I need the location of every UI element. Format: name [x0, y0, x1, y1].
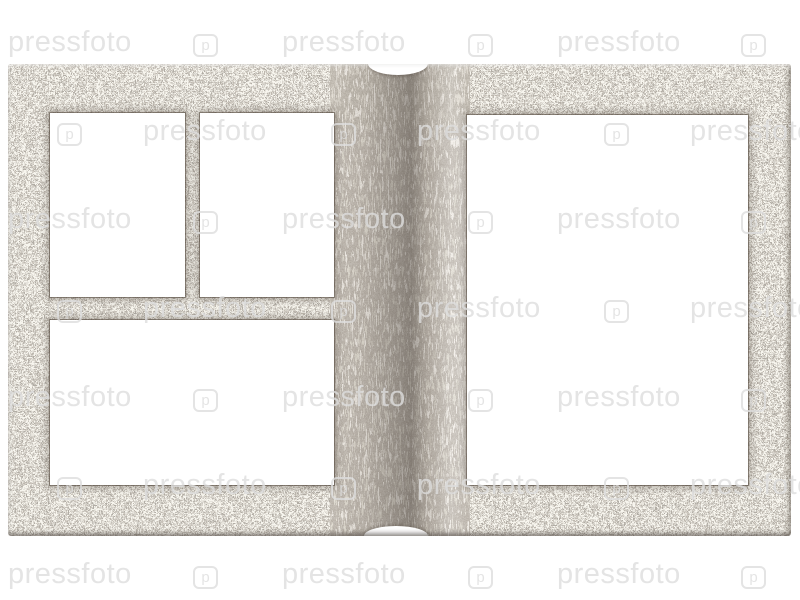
stock-photo-canvas: pressfotoppressfotoppressfotopppressfoto… [0, 0, 800, 600]
pressfoto-logo-icon: p [193, 566, 218, 589]
watermark-text: pressfoto [557, 28, 681, 56]
photo-window-bottom-left [50, 320, 334, 485]
pressfoto-logo-glyph: p [201, 38, 209, 53]
pressfoto-logo-icon: p [741, 566, 766, 589]
book-spine-gutter [334, 64, 467, 536]
pressfoto-logo-glyph: p [749, 38, 757, 53]
pressfoto-logo-glyph: p [476, 38, 484, 53]
watermark-text: pressfoto [557, 560, 681, 588]
pressfoto-logo-icon: p [741, 34, 766, 57]
photo-window-top-right [200, 113, 334, 297]
photo-window-top-left [50, 113, 185, 297]
pressfoto-logo-icon: p [468, 34, 493, 57]
watermark-text: pressfoto [282, 28, 406, 56]
watermark-text: pressfoto [8, 560, 132, 588]
pressfoto-logo-icon: p [193, 34, 218, 57]
right-page-bevel-highlight [453, 115, 467, 485]
pressfoto-logo-glyph: p [749, 570, 757, 585]
stone-photo-album-frame [8, 64, 791, 536]
pressfoto-logo-glyph: p [201, 570, 209, 585]
watermark-text: pressfoto [282, 560, 406, 588]
watermark-text: pressfoto [8, 28, 132, 56]
photo-window-right-page [467, 115, 748, 485]
pressfoto-logo-glyph: p [476, 570, 484, 585]
pressfoto-logo-icon: p [468, 566, 493, 589]
